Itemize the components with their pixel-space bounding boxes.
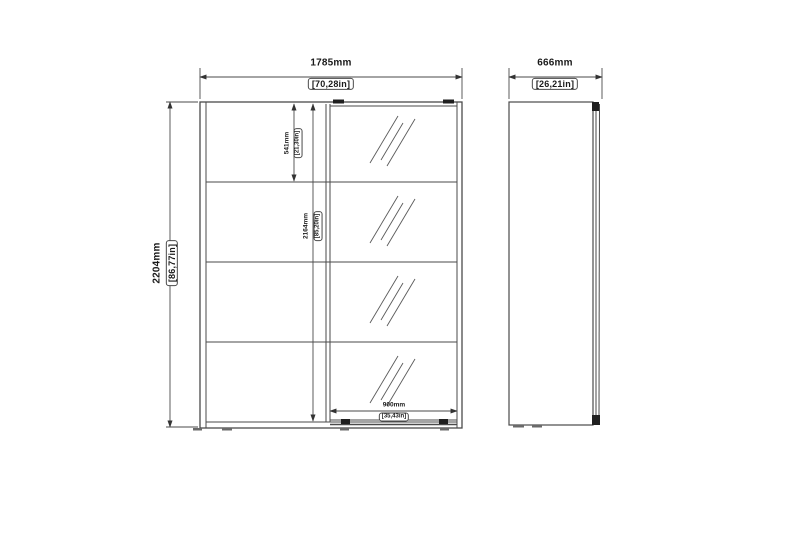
dim-interior-height-mm-label: 2164mm <box>302 213 309 239</box>
dimension-drawing <box>0 0 800 533</box>
dim-width-in-label: [70,28in] <box>308 78 354 90</box>
dim-interior-height-in-label: [85,20in] <box>314 211 323 241</box>
mirror-hatch-marks <box>370 116 415 406</box>
dim-depth-mm-label: 666mm <box>537 57 572 69</box>
shelf-lines <box>206 182 457 342</box>
dim-top-section-in-label: [21,30in] <box>294 128 303 158</box>
dim-door-width-in-label: [35,43in] <box>379 413 409 422</box>
bottom-rail <box>206 422 457 425</box>
dim-height-in-label: [86,77in] <box>166 240 178 286</box>
dim-width-mm-label: 1785mm <box>310 57 351 69</box>
dimension-lines <box>166 68 602 427</box>
dim-top-section-mm-label: 541mm <box>283 132 290 154</box>
side-carcass-outline <box>509 102 593 425</box>
front-view <box>193 100 462 431</box>
side-view <box>509 102 600 428</box>
front-carcass-outline <box>200 102 462 428</box>
door-divider <box>326 104 330 422</box>
dim-depth-in-label: [26,21in] <box>532 78 578 90</box>
dim-height-mm-label: 2204mm <box>151 242 163 283</box>
dim-door-width-mm-label: 900mm <box>383 401 405 408</box>
side-door-panel <box>593 104 600 424</box>
mirror-door-outline <box>330 106 457 420</box>
drawing-canvas: 1785mm [70,28in] 666mm [26,21in] 2204mm … <box>0 0 800 533</box>
